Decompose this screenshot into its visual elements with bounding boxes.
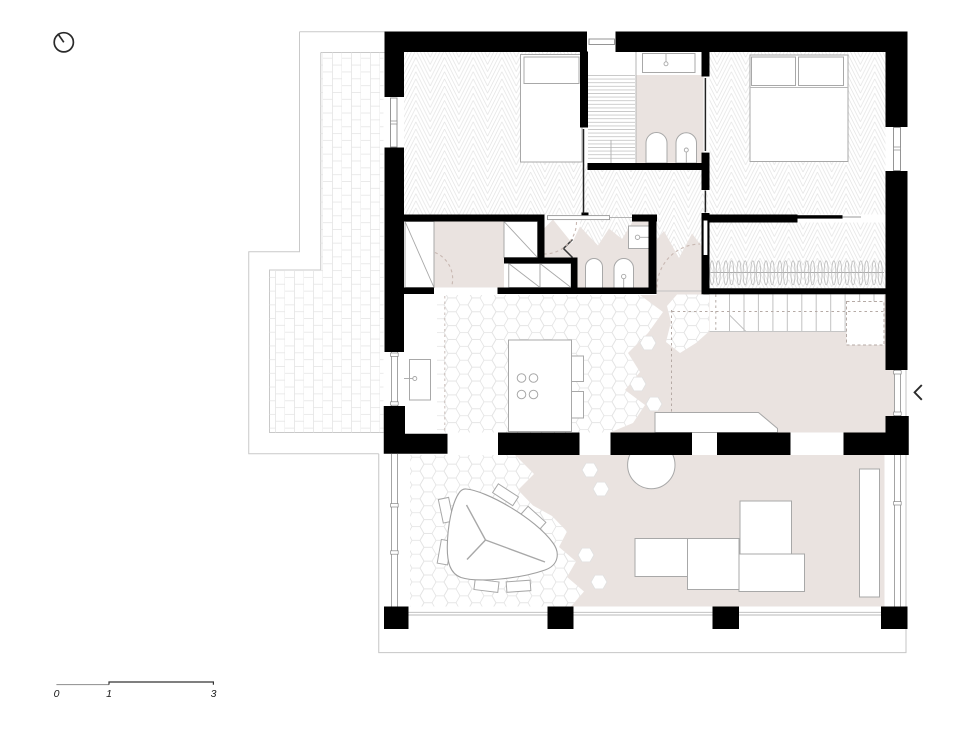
svg-text:1: 1 (106, 688, 112, 700)
svg-text:0: 0 (54, 688, 60, 700)
svg-text:3: 3 (211, 688, 217, 700)
